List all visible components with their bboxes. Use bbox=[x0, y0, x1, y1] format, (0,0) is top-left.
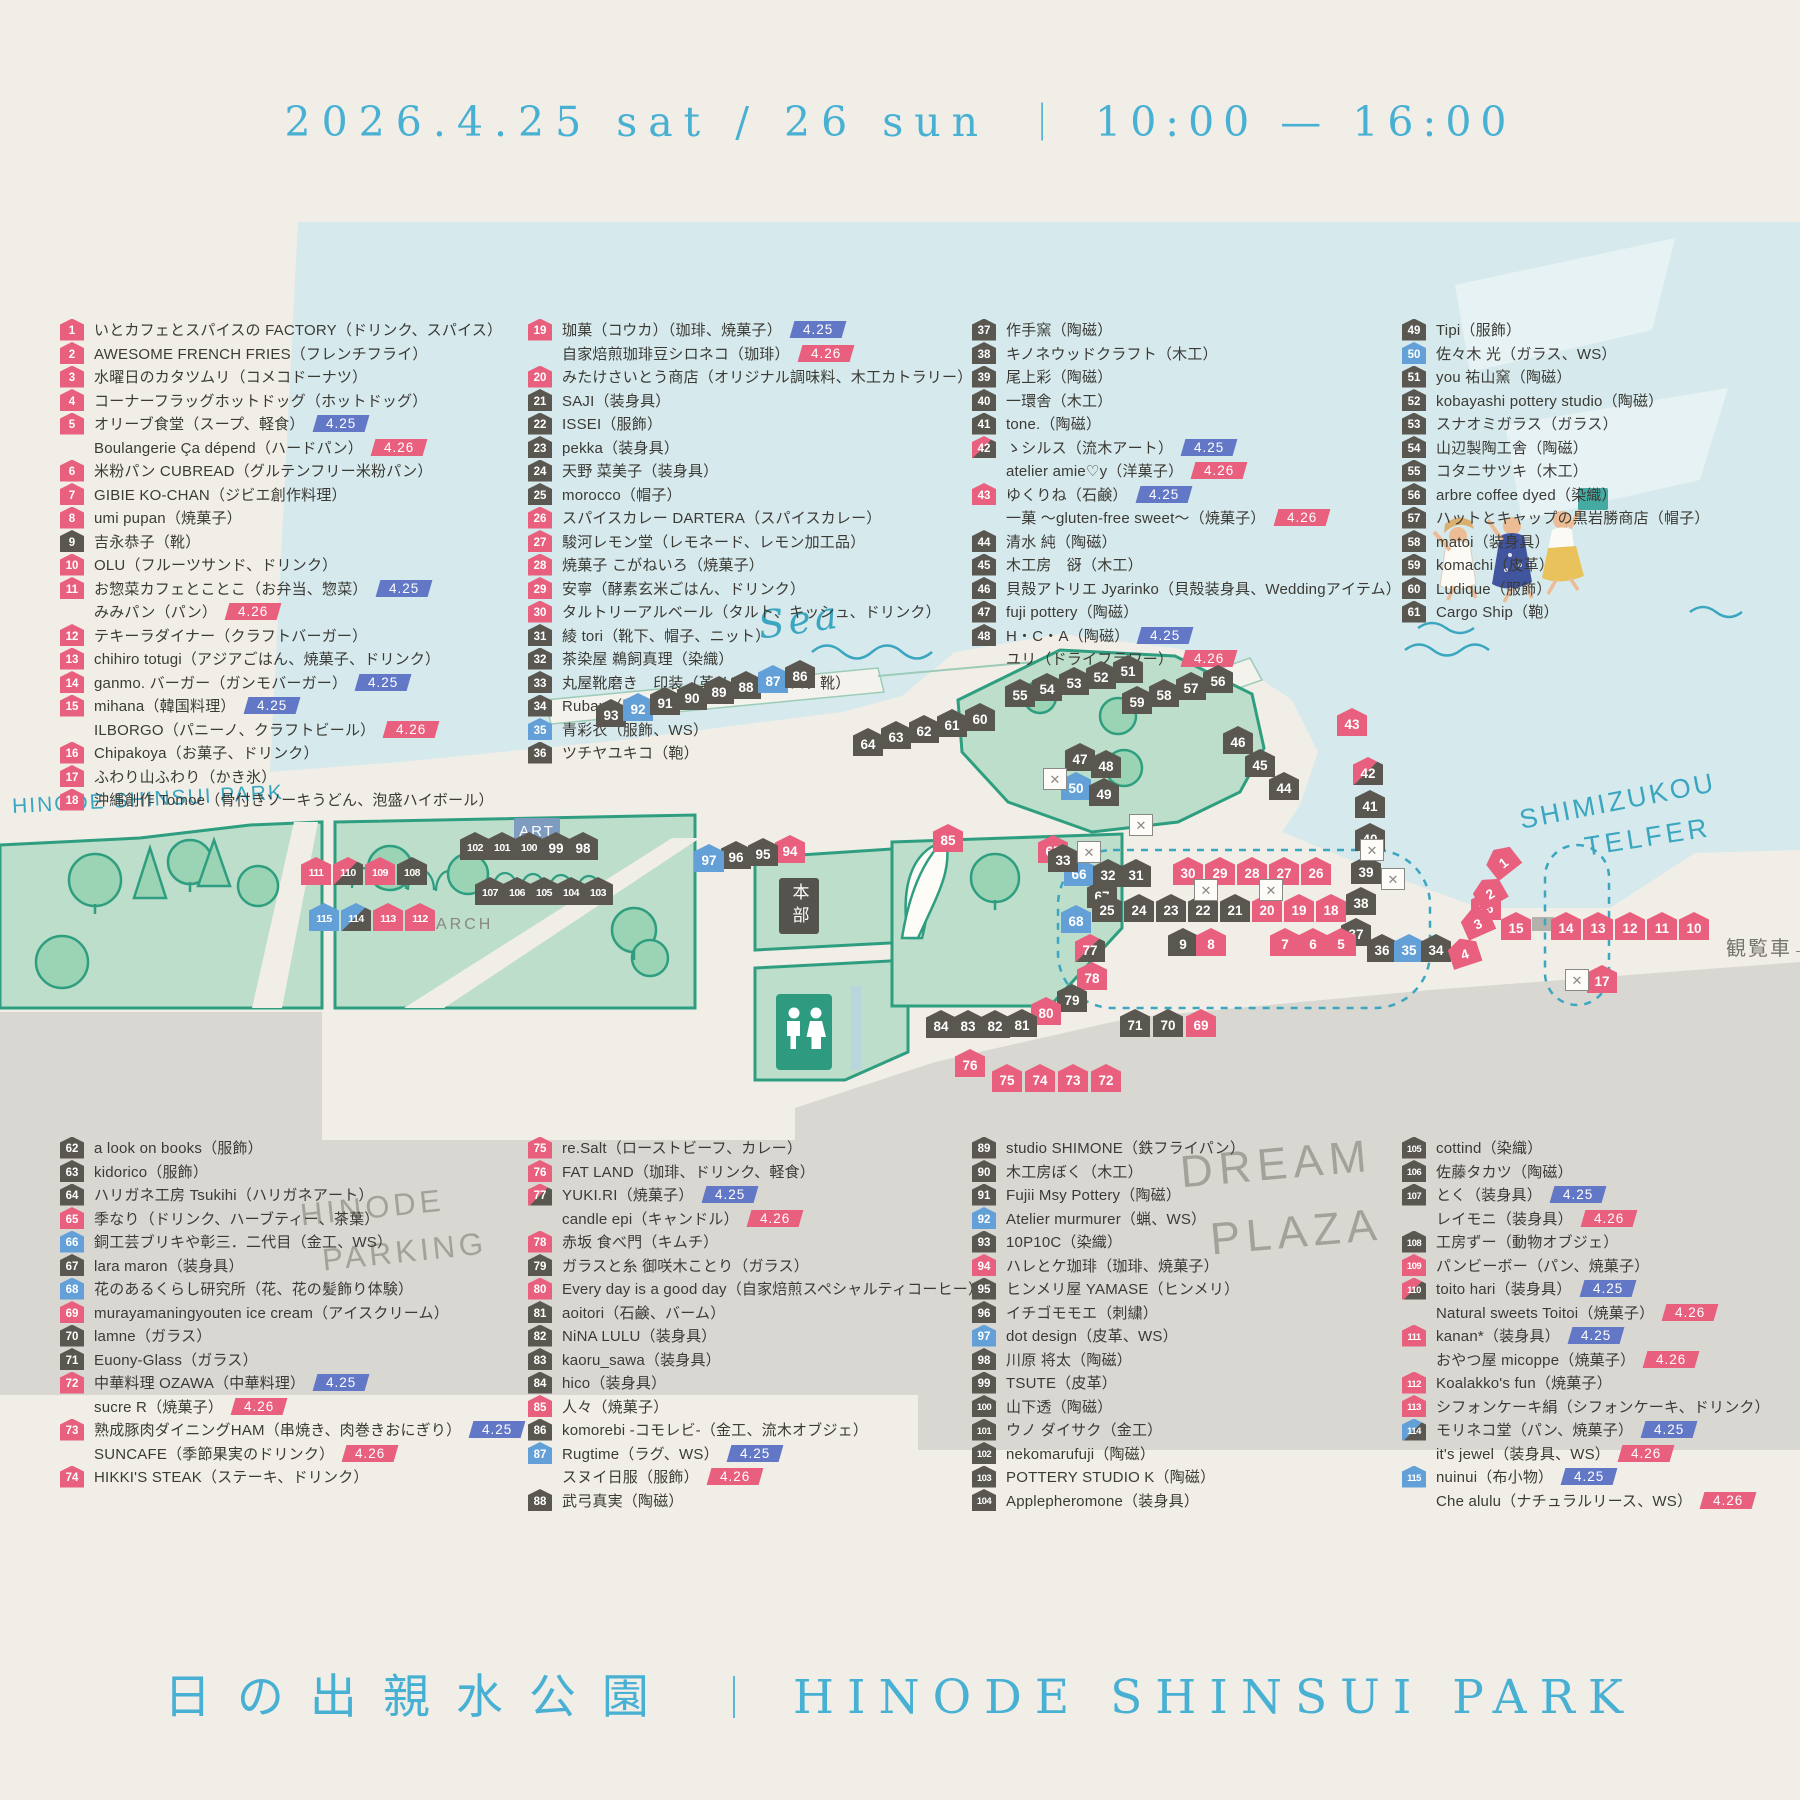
vendor-row: 77YUKI.RI（焼菓子）4.25 bbox=[528, 1183, 756, 1206]
vendor-name: 自家焙煎珈琲豆シロネコ（珈琲） bbox=[562, 343, 790, 364]
vendor-name: 作手窯（陶磁） bbox=[1006, 319, 1112, 340]
date-badge: 4.26 bbox=[1643, 1351, 1700, 1368]
vendor-row: 96イチゴモモエ（刺繍） bbox=[972, 1301, 1158, 1324]
vendor-row: 88武弓真実（陶磁） bbox=[528, 1489, 684, 1512]
date-badge: 4.25 bbox=[469, 1421, 526, 1438]
vendor-name: 銅工芸ブリキや彰三．二代目（金工、WS） bbox=[94, 1231, 392, 1252]
vendor-number-marker: 68 bbox=[60, 1278, 84, 1300]
date-badge: 4.25 bbox=[1137, 627, 1194, 644]
vendor-row: 46貝殻アトリエ Jyarinko（貝殻装身具、Weddingアイテム） bbox=[972, 577, 1401, 600]
vendor-name: POTTERY STUDIO K（陶磁） bbox=[1006, 1466, 1215, 1487]
vendor-row: 59komachi（皮革） bbox=[1402, 553, 1554, 576]
vendor-row: 40一環舎（木工） bbox=[972, 389, 1112, 412]
vendor-row: 111kanan*（装身具）4.25 bbox=[1402, 1324, 1622, 1347]
event-map-poster: 2026.4.25 sat / 26 sun ｜ 10:00 — 16:00 H… bbox=[0, 0, 1800, 1800]
date-badge: 4.25 bbox=[789, 321, 846, 338]
vendor-number-marker: 52 bbox=[1402, 389, 1426, 411]
vendor-name: 茶染屋 鵜飼真理（染織） bbox=[562, 648, 734, 669]
vendor-number-marker: 109 bbox=[1402, 1254, 1426, 1276]
date-badge: 4.25 bbox=[701, 1186, 758, 1203]
vendor-name: モリネコ堂（パン、焼菓子） bbox=[1436, 1419, 1633, 1440]
vendor-name: cottind（染織） bbox=[1436, 1137, 1542, 1158]
vendor-row-extra: みみパン（パン）4.26 bbox=[60, 600, 279, 623]
vendor-row: 71Euony-Glass（ガラス） bbox=[60, 1348, 258, 1371]
vendor-number-marker: 74 bbox=[60, 1466, 84, 1488]
vendor-name: 貝殻アトリエ Jyarinko（貝殻装身具、Weddingアイテム） bbox=[1006, 578, 1401, 599]
vendor-name: 青彩衣（服飾、WS） bbox=[562, 719, 708, 740]
vendor-name: 安寧（酵素玄米ごはん、ドリンク） bbox=[562, 578, 805, 599]
vendor-row: 17ふわり山ふわり（かき氷） bbox=[60, 765, 276, 788]
vendor-row: 103POTTERY STUDIO K（陶磁） bbox=[972, 1465, 1215, 1488]
vendor-name: 木工房 谺（木工） bbox=[1006, 554, 1143, 575]
date-badge: 4.26 bbox=[746, 1210, 803, 1227]
vendor-name: スナオミガラス（ガラス） bbox=[1436, 413, 1618, 434]
vendor-row: 8umi pupan（焼菓子） bbox=[60, 506, 242, 529]
vendor-name: 佐々木 光（ガラス、WS） bbox=[1436, 343, 1617, 364]
vendor-row: 32茶染屋 鵜飼真理（染織） bbox=[528, 647, 734, 670]
vendor-name: HIKKI'S STEAK（ステーキ、ドリンク） bbox=[94, 1466, 369, 1487]
vendor-name: Natural sweets Toitoi（焼菓子） bbox=[1436, 1302, 1654, 1323]
vendor-name: Fujii Msy Pottery（陶磁） bbox=[1006, 1184, 1181, 1205]
vendor-name: タルトリーアルベール（タルト、キッシュ、ドリンク） bbox=[562, 601, 941, 622]
vendor-row-extra: sucre R（焼菓子）4.26 bbox=[60, 1395, 285, 1418]
vendor-row: 63kidorico（服飾） bbox=[60, 1160, 208, 1183]
vendor-name: GIBIE KO-CHAN（ジビエ創作料理） bbox=[94, 484, 347, 505]
arch-label: ARCH bbox=[436, 916, 493, 934]
vendor-row: 69murayamaningyouten ice cream（アイスクリーム） bbox=[60, 1301, 449, 1324]
vendor-number-marker: 42 bbox=[972, 436, 996, 458]
vendor-row: 98川原 将太（陶磁） bbox=[972, 1348, 1132, 1371]
vendor-number-marker: 91 bbox=[972, 1184, 996, 1206]
vendor-name: 駿河レモン堂（レモネード、レモン加工品） bbox=[562, 531, 865, 552]
vendor-name: いとカフェとスパイスの FACTORY（ドリンク、スパイス） bbox=[94, 319, 502, 340]
vendor-number-marker: 61 bbox=[1402, 601, 1426, 623]
vendor-name: ISSEI（服飾） bbox=[562, 413, 662, 434]
vendor-name: 清水 純（陶磁） bbox=[1006, 531, 1117, 552]
vendor-name: nuinui（布小物） bbox=[1436, 1466, 1553, 1487]
vendor-number-marker: 82 bbox=[528, 1325, 552, 1347]
vendor-name: YUKI.RI（焼菓子） bbox=[562, 1184, 694, 1205]
vendor-name: ハレとケ珈琲（珈琲、焼菓子） bbox=[1006, 1255, 1219, 1276]
vendor-number-marker: 87 bbox=[528, 1442, 552, 1464]
vendor-name: kidorico（服飾） bbox=[94, 1161, 208, 1182]
park-title-jp: 日の出親水公園 bbox=[164, 1658, 675, 1727]
vendor-number-marker: 31 bbox=[528, 624, 552, 646]
vendor-number-marker: 102 bbox=[972, 1442, 996, 1464]
vendor-name: chihiro totugi（アジアごはん、焼菓子、ドリンク） bbox=[94, 648, 440, 669]
date-badge: 4.26 bbox=[1181, 650, 1238, 667]
vendor-name: おやつ屋 micoppe（焼菓子） bbox=[1436, 1349, 1635, 1370]
vendor-name: 佐藤タカツ（陶磁） bbox=[1436, 1161, 1573, 1182]
vendor-row: 21SAJI（装身具） bbox=[528, 389, 670, 412]
vendor-name: NiNA LULU（装身具） bbox=[562, 1325, 717, 1346]
vendor-row: 18沖縄創作 Tomoe（骨付きソーキうどん、泡盛ハイボール） bbox=[60, 788, 494, 811]
vendor-name: dot design（皮革、WS） bbox=[1006, 1325, 1178, 1346]
vendor-row: 11お惣菜カフェとことこ（お弁当、惣菜）4.25 bbox=[60, 577, 430, 600]
vendor-row: 5オリーブ食堂（スープ、軽食）4.25 bbox=[60, 412, 367, 435]
date-badge: 4.26 bbox=[1580, 1210, 1637, 1227]
vendor-number-marker: 32 bbox=[528, 648, 552, 670]
vendor-row: 16Chipakoya（お菓子、ドリンク） bbox=[60, 741, 319, 764]
vendor-row: 87Rugtime（ラグ、WS）4.25 bbox=[528, 1442, 781, 1465]
vendor-number-marker: 95 bbox=[972, 1278, 996, 1300]
vendor-name: it's jewel（装身具、WS） bbox=[1436, 1443, 1610, 1464]
vendor-name: umi pupan（焼菓子） bbox=[94, 507, 242, 528]
vendor-row: 39尾上彩（陶磁） bbox=[972, 365, 1112, 388]
vendor-number-marker: 9 bbox=[60, 530, 84, 552]
vendor-row: 9310P10C（染織） bbox=[972, 1230, 1122, 1253]
vendor-number-marker: 12 bbox=[60, 624, 84, 646]
bench-strip bbox=[851, 986, 861, 1070]
vendor-row: 95ヒンメリ屋 YAMASE（ヒンメリ） bbox=[972, 1277, 1239, 1300]
footer: 日の出親水公園 ｜ HINODE SHINSUI PARK bbox=[0, 1658, 1800, 1727]
vendor-row: 70lamne（ガラス） bbox=[60, 1324, 212, 1347]
date-badge: 4.25 bbox=[1550, 1186, 1607, 1203]
vendor-row: 75re.Salt（ローストビーフ、カレー） bbox=[528, 1136, 802, 1159]
vendor-number-marker: 90 bbox=[972, 1160, 996, 1182]
vendor-row: 101ウノ ダイサク（金工） bbox=[972, 1418, 1162, 1441]
vendor-row: 115nuinui（布小物）4.25 bbox=[1402, 1465, 1616, 1488]
vendor-number-marker: 6 bbox=[60, 460, 84, 482]
vendor-row-extra: Boulangerie Ça dépend（ハードパン）4.26 bbox=[60, 436, 425, 459]
vendor-row: 79ガラスと糸 御咲木ことり（ガラス） bbox=[528, 1254, 809, 1277]
vendor-row-extra: 一菓 ～gluten-free sweet～（焼菓子）4.26 bbox=[972, 506, 1328, 529]
vendor-row-extra: レイモニ（装身具）4.26 bbox=[1402, 1207, 1635, 1230]
vendor-name: kanan*（装身具） bbox=[1436, 1325, 1560, 1346]
vendor-number-marker: 23 bbox=[528, 436, 552, 458]
vendor-name: 尾上彩（陶磁） bbox=[1006, 366, 1112, 387]
vendor-name: arbre coffee dyed（染織） bbox=[1436, 484, 1617, 505]
vendor-row: 110toito hari（装身具）4.25 bbox=[1402, 1277, 1634, 1300]
vendor-row: 73熟成豚肉ダイニングHAM（串焼き、肉巻きおにぎり）4.25 bbox=[60, 1418, 524, 1441]
vendor-row-extra: it's jewel（装身具、WS）4.26 bbox=[1402, 1442, 1672, 1465]
vendor-row: 12テキーラダイナー（クラフトバーガー） bbox=[60, 624, 367, 647]
closed-stall-icon: ✕ bbox=[1129, 814, 1153, 836]
vendor-name: みみパン（パン） bbox=[94, 601, 217, 622]
vendor-row: 68花のあるくらし研究所（花、花の髪飾り体験） bbox=[60, 1277, 413, 1300]
vendor-name: FAT LAND（珈琲、ドリンク、軽食） bbox=[562, 1161, 815, 1182]
vendor-number-marker: 44 bbox=[972, 530, 996, 552]
vendor-row: 91Fujii Msy Pottery（陶磁） bbox=[972, 1183, 1181, 1206]
vendor-number-marker: 17 bbox=[60, 765, 84, 787]
vendor-name: みたけさいとう商店（オリジナル調味料、木工カトラリー） bbox=[562, 366, 972, 387]
vendor-number-marker: 40 bbox=[972, 389, 996, 411]
vendor-row: 38キノネウッドクラフト（木工） bbox=[972, 342, 1218, 365]
vendor-name: Every day is a good day（自家焙煎スペシャルティコーヒー） bbox=[562, 1278, 983, 1299]
vendor-name: ハリガネ工房 Tsukihi（ハリガネアート） bbox=[94, 1184, 374, 1205]
vendor-name: komorebi -コモレビ-（金工、流木オブジェ） bbox=[562, 1419, 868, 1440]
vendor-number-marker: 88 bbox=[528, 1489, 552, 1511]
vendor-name: murayamaningyouten ice cream（アイスクリーム） bbox=[94, 1302, 449, 1323]
vendor-number-marker: 57 bbox=[1402, 507, 1426, 529]
vendor-row: 42ゝシルス（流木アート）4.25 bbox=[972, 436, 1235, 459]
vendor-number-marker: 69 bbox=[60, 1301, 84, 1323]
vendor-row: 49Tipi（服飾） bbox=[1402, 318, 1521, 341]
vendor-number-marker: 51 bbox=[1402, 366, 1426, 388]
vendor-name: kaoru_sawa（装身具） bbox=[562, 1349, 721, 1370]
vendor-name: fuji pottery（陶磁） bbox=[1006, 601, 1138, 622]
vendor-number-marker: 93 bbox=[972, 1231, 996, 1253]
vendor-row: 99TSUTE（皮革） bbox=[972, 1371, 1117, 1394]
vendor-row: 6米粉パン CUBREAD（グルテンフリー米粉パン） bbox=[60, 459, 433, 482]
vendor-name: Tipi（服飾） bbox=[1436, 319, 1521, 340]
vendor-row-extra: ILBORGO（パニーノ、クラフトビール）4.26 bbox=[60, 718, 438, 741]
closed-stall-icon: ✕ bbox=[1043, 768, 1067, 790]
date-badge: 4.26 bbox=[225, 603, 282, 620]
vendor-name: Euony-Glass（ガラス） bbox=[94, 1349, 258, 1370]
vendor-name: 綾 tori（靴下、帽子、ニット） bbox=[562, 625, 770, 646]
vendor-number-marker: 45 bbox=[972, 554, 996, 576]
vendor-row: 2AWESOME FRENCH FRIES（フレンチフライ） bbox=[60, 342, 428, 365]
vendor-name: 10P10C（染織） bbox=[1006, 1231, 1122, 1252]
vendor-row: 43ゆくりね（石鹸）4.25 bbox=[972, 483, 1190, 506]
vendor-row-extra: SUNCAFE（季節果実のドリンク）4.26 bbox=[60, 1442, 397, 1465]
vendor-row: 114モリネコ堂（パン、焼菓子）4.25 bbox=[1402, 1418, 1695, 1441]
vendor-number-marker: 22 bbox=[528, 413, 552, 435]
vendor-name: テキーラダイナー（クラフトバーガー） bbox=[94, 625, 367, 646]
vendor-name: イチゴモモエ（刺繍） bbox=[1006, 1302, 1158, 1323]
vendor-row: 55コタニサツキ（木工） bbox=[1402, 459, 1588, 482]
closed-stall-icon: ✕ bbox=[1360, 839, 1384, 861]
vendor-number-marker: 30 bbox=[528, 601, 552, 623]
vendor-name: re.Salt（ローストビーフ、カレー） bbox=[562, 1137, 802, 1158]
vendor-row: 24天野 菜美子（装身具） bbox=[528, 459, 718, 482]
vendor-row: 58matoi（装身具） bbox=[1402, 530, 1550, 553]
vendor-number-marker: 114 bbox=[1402, 1419, 1426, 1441]
vendor-row: 65季なり（ドリンク、ハーブティー、茶葉） bbox=[60, 1207, 380, 1230]
vendor-name: atelier amie♡y（洋菓子） bbox=[1006, 460, 1183, 481]
vendor-row: 84hico（装身具） bbox=[528, 1371, 666, 1394]
vendor-number-marker: 39 bbox=[972, 366, 996, 388]
vendor-row: 25morocco（帽子） bbox=[528, 483, 682, 506]
vendor-row: 54山辺製陶工舎（陶磁） bbox=[1402, 436, 1588, 459]
vendor-row: 53スナオミガラス（ガラス） bbox=[1402, 412, 1618, 435]
vendor-number-marker: 83 bbox=[528, 1348, 552, 1370]
vendor-number-marker: 80 bbox=[528, 1278, 552, 1300]
vendor-name: シフォンケーキ絹（シフォンケーキ、ドリンク） bbox=[1436, 1396, 1770, 1417]
vendor-number-marker: 75 bbox=[528, 1137, 552, 1159]
vendor-row: 1いとカフェとスパイスの FACTORY（ドリンク、スパイス） bbox=[60, 318, 502, 341]
vendor-number-marker: 25 bbox=[528, 483, 552, 505]
vendor-row: 52kobayashi pottery studio（陶磁） bbox=[1402, 389, 1663, 412]
footer-separator: ｜ bbox=[713, 1665, 755, 1726]
vendor-name: ガラスと糸 御咲木ことり（ガラス） bbox=[562, 1255, 809, 1276]
vendor-number-marker: 103 bbox=[972, 1466, 996, 1488]
vendor-name: ゆくりね（石鹸） bbox=[1006, 484, 1128, 505]
park-map-graphic bbox=[0, 0, 1800, 1800]
vendor-name: 焼菓子 こがねいろ（焼菓子） bbox=[562, 554, 764, 575]
vendor-name: tone.（陶磁） bbox=[1006, 413, 1101, 434]
vendor-number-marker: 48 bbox=[972, 624, 996, 646]
vendor-row: 104Applepheromone（装身具） bbox=[972, 1489, 1199, 1512]
vendor-number-marker: 67 bbox=[60, 1254, 84, 1276]
vendor-row-extra: おやつ屋 micoppe（焼菓子）4.26 bbox=[1402, 1348, 1698, 1371]
vendor-row: 31綾 tori（靴下、帽子、ニット） bbox=[528, 624, 770, 647]
vendor-number-marker: 5 bbox=[60, 413, 84, 435]
header: 2026.4.25 sat / 26 sun ｜ 10:00 — 16:00 bbox=[0, 92, 1800, 147]
vendor-name: とく（装身具） bbox=[1436, 1184, 1542, 1205]
vendor-row: 105cottind（染織） bbox=[1402, 1136, 1542, 1159]
vendor-name: Rugtime（ラグ、WS） bbox=[562, 1443, 719, 1464]
vendor-number-marker: 60 bbox=[1402, 577, 1426, 599]
vendor-row-extra: スヌイ日服（服飾）4.26 bbox=[528, 1465, 761, 1488]
vendor-number-marker: 47 bbox=[972, 601, 996, 623]
vendor-number-marker: 43 bbox=[972, 483, 996, 505]
vendor-row: 109パンビーボー（パン、焼菓子） bbox=[1402, 1254, 1649, 1277]
vendor-number-marker: 49 bbox=[1402, 319, 1426, 341]
vendor-row: 74HIKKI'S STEAK（ステーキ、ドリンク） bbox=[60, 1465, 369, 1488]
vendor-number-marker: 56 bbox=[1402, 483, 1426, 505]
vendor-number-marker: 107 bbox=[1402, 1184, 1426, 1206]
vendor-number-marker: 63 bbox=[60, 1160, 84, 1182]
vendor-name: 季なり（ドリンク、ハーブティー、茶葉） bbox=[94, 1208, 380, 1229]
vendor-name: パンビーボー（パン、焼菓子） bbox=[1436, 1255, 1649, 1276]
vendor-number-marker: 34 bbox=[528, 695, 552, 717]
vendor-number-marker: 4 bbox=[60, 389, 84, 411]
vendor-row: 60Ludique（服飾） bbox=[1402, 577, 1552, 600]
vendor-name: コタニサツキ（木工） bbox=[1436, 460, 1588, 481]
vendor-row: 47fuji pottery（陶磁） bbox=[972, 600, 1138, 623]
vendor-row-extra: atelier amie♡y（洋菓子）4.26 bbox=[972, 459, 1246, 482]
date-badge: 4.25 bbox=[1135, 486, 1192, 503]
vendor-name: mihana（韓国料理） bbox=[94, 695, 236, 716]
vendor-number-marker: 84 bbox=[528, 1372, 552, 1394]
vendor-name: kobayashi pottery studio（陶磁） bbox=[1436, 390, 1663, 411]
vendor-row-extra: candle epi（キャンドル）4.26 bbox=[528, 1207, 801, 1230]
vendor-number-marker: 55 bbox=[1402, 460, 1426, 482]
hq-label: 本部 bbox=[779, 878, 819, 934]
vendor-name: 木工房ぼく（木工） bbox=[1006, 1161, 1143, 1182]
vendor-number-marker: 46 bbox=[972, 577, 996, 599]
vendor-name: Atelier murmurer（蝋、WS） bbox=[1006, 1208, 1206, 1229]
date-badge: 4.25 bbox=[1181, 439, 1238, 456]
vendor-row: 23pekka（装身具） bbox=[528, 436, 679, 459]
date-badge: 4.26 bbox=[1618, 1445, 1675, 1462]
vendor-number-marker: 104 bbox=[972, 1489, 996, 1511]
vendor-number-marker: 94 bbox=[972, 1254, 996, 1276]
date-badge: 4.26 bbox=[706, 1468, 763, 1485]
vendor-name: SAJI（装身具） bbox=[562, 390, 670, 411]
vendor-number-marker: 58 bbox=[1402, 530, 1426, 552]
vendor-name: 山下透（陶磁） bbox=[1006, 1396, 1112, 1417]
vendor-row: 83kaoru_sawa（装身具） bbox=[528, 1348, 721, 1371]
vendor-number-marker: 77 bbox=[528, 1184, 552, 1206]
vendor-row: 92Atelier murmurer（蝋、WS） bbox=[972, 1207, 1206, 1230]
vendor-number-marker: 86 bbox=[528, 1419, 552, 1441]
vendor-row: 45木工房 谺（木工） bbox=[972, 553, 1143, 576]
vendor-number-marker: 37 bbox=[972, 319, 996, 341]
vendor-name: AWESOME FRENCH FRIES（フレンチフライ） bbox=[94, 343, 428, 364]
vendor-name: 熟成豚肉ダイニングHAM（串焼き、肉巻きおにぎり） bbox=[94, 1419, 461, 1440]
vendor-number-marker: 106 bbox=[1402, 1160, 1426, 1182]
vendor-name: 沖縄創作 Tomoe（骨付きソーキうどん、泡盛ハイボール） bbox=[94, 789, 494, 810]
vendor-row: 94ハレとケ珈琲（珈琲、焼菓子） bbox=[972, 1254, 1219, 1277]
vendor-row: 10OLU（フルーツサンド、ドリンク） bbox=[60, 553, 337, 576]
vendor-number-marker: 41 bbox=[972, 413, 996, 435]
vendor-row: 62a look on books（服飾） bbox=[60, 1136, 263, 1159]
vendor-name: 川原 将太（陶磁） bbox=[1006, 1349, 1132, 1370]
date-badge: 4.26 bbox=[371, 439, 428, 456]
vendor-name: hico（装身具） bbox=[562, 1372, 666, 1393]
vendor-name: H・C・A（陶磁） bbox=[1006, 625, 1129, 646]
date-badge: 4.25 bbox=[313, 1374, 370, 1391]
vendor-row: 29安寧（酵素玄米ごはん、ドリンク） bbox=[528, 577, 805, 600]
vendor-name: ふわり山ふわり（かき氷） bbox=[94, 766, 276, 787]
vendor-number-marker: 11 bbox=[60, 577, 84, 599]
date-badge: 4.25 bbox=[243, 697, 300, 714]
vendor-number-marker: 8 bbox=[60, 507, 84, 529]
vendor-number-marker: 98 bbox=[972, 1348, 996, 1370]
vendor-name: Che alulu（ナチュラルリース、WS） bbox=[1436, 1490, 1692, 1511]
vendor-name: matoi（装身具） bbox=[1436, 531, 1550, 552]
vendor-number-marker: 65 bbox=[60, 1207, 84, 1229]
vendor-number-marker: 16 bbox=[60, 742, 84, 764]
vendor-number-marker: 7 bbox=[60, 483, 84, 505]
vendor-row: 90木工房ぼく（木工） bbox=[972, 1160, 1143, 1183]
vendor-row: 107とく（装身具）4.25 bbox=[1402, 1183, 1604, 1206]
vendor-number-marker: 97 bbox=[972, 1325, 996, 1347]
vendor-row: 113シフォンケーキ絹（シフォンケーキ、ドリンク） bbox=[1402, 1395, 1770, 1418]
vendor-name: Cargo Ship（鞄） bbox=[1436, 601, 1559, 622]
date-badge: 4.26 bbox=[1273, 509, 1330, 526]
vendor-name: オリーブ食堂（スープ、軽食） bbox=[94, 413, 305, 434]
vendor-number-marker: 76 bbox=[528, 1160, 552, 1182]
vendor-row-extra: Natural sweets Toitoi（焼菓子）4.26 bbox=[1402, 1301, 1717, 1324]
vendor-number-marker: 70 bbox=[60, 1325, 84, 1347]
vendor-name: aoitori（石鹸、バーム） bbox=[562, 1302, 725, 1323]
vendor-number-marker: 15 bbox=[60, 695, 84, 717]
vendor-name: 人々（焼菓子） bbox=[562, 1396, 668, 1417]
vendor-row: 51you 祐山窯（陶磁） bbox=[1402, 365, 1572, 388]
date-badge: 4.25 bbox=[1641, 1421, 1698, 1438]
event-time: 10:00 — 16:00 bbox=[1095, 98, 1515, 146]
vendor-name: キノネウッドクラフト（木工） bbox=[1006, 343, 1218, 364]
vendor-row: 85人々（焼菓子） bbox=[528, 1395, 668, 1418]
vendor-name: 赤坂 食べ門（キムチ） bbox=[562, 1231, 718, 1252]
vendor-name: ユリ（ドライフラワー） bbox=[1006, 648, 1173, 669]
vendor-row: 66銅工芸ブリキや彰三．二代目（金工、WS） bbox=[60, 1230, 392, 1253]
vendor-number-marker: 26 bbox=[528, 507, 552, 529]
closed-stall-icon: ✕ bbox=[1194, 879, 1218, 901]
date-badge: 4.25 bbox=[1567, 1327, 1624, 1344]
vendor-row: 26スパイスカレー DARTERA（スパイスカレー） bbox=[528, 506, 881, 529]
vendor-number-marker: 78 bbox=[528, 1231, 552, 1253]
vendor-row: 14ganmo. バーガー（ガンモバーガー）4.25 bbox=[60, 671, 409, 694]
date-badge: 4.26 bbox=[1191, 462, 1248, 479]
vendor-row: 102nekomarufuji（陶磁） bbox=[972, 1442, 1155, 1465]
vendor-name: TSUTE（皮革） bbox=[1006, 1372, 1117, 1393]
vendor-row: 106佐藤タカツ（陶磁） bbox=[1402, 1160, 1573, 1183]
vendor-row-extra: Che alulu（ナチュラルリース、WS）4.26 bbox=[1402, 1489, 1754, 1512]
bridge bbox=[1532, 917, 1554, 931]
vendor-name: ゝシルス（流木アート） bbox=[1006, 437, 1173, 458]
vendor-row: 57ハットとキャップの黒岩勝商店（帽子） bbox=[1402, 506, 1710, 529]
vendor-number-marker: 92 bbox=[972, 1207, 996, 1229]
vendor-name: nekomarufuji（陶磁） bbox=[1006, 1443, 1155, 1464]
vendor-name: candle epi（キャンドル） bbox=[562, 1208, 739, 1229]
vendor-name: studio SHIMONE（鉄フライパン） bbox=[1006, 1137, 1245, 1158]
vendor-row: 61Cargo Ship（鞄） bbox=[1402, 600, 1559, 623]
vendor-number-marker: 99 bbox=[972, 1372, 996, 1394]
vendor-name: Boulangerie Ça dépend（ハードパン） bbox=[94, 437, 363, 458]
vendor-row: 41tone.（陶磁） bbox=[972, 412, 1101, 435]
vendor-number-marker: 50 bbox=[1402, 342, 1426, 364]
vendor-number-marker: 96 bbox=[972, 1301, 996, 1323]
vendor-row: 28焼菓子 こがねいろ（焼菓子） bbox=[528, 553, 764, 576]
vendor-number-marker: 10 bbox=[60, 554, 84, 576]
vendor-name: お惣菜カフェとことこ（お弁当、惣菜） bbox=[94, 578, 368, 599]
date-badge: 4.26 bbox=[342, 1445, 399, 1462]
